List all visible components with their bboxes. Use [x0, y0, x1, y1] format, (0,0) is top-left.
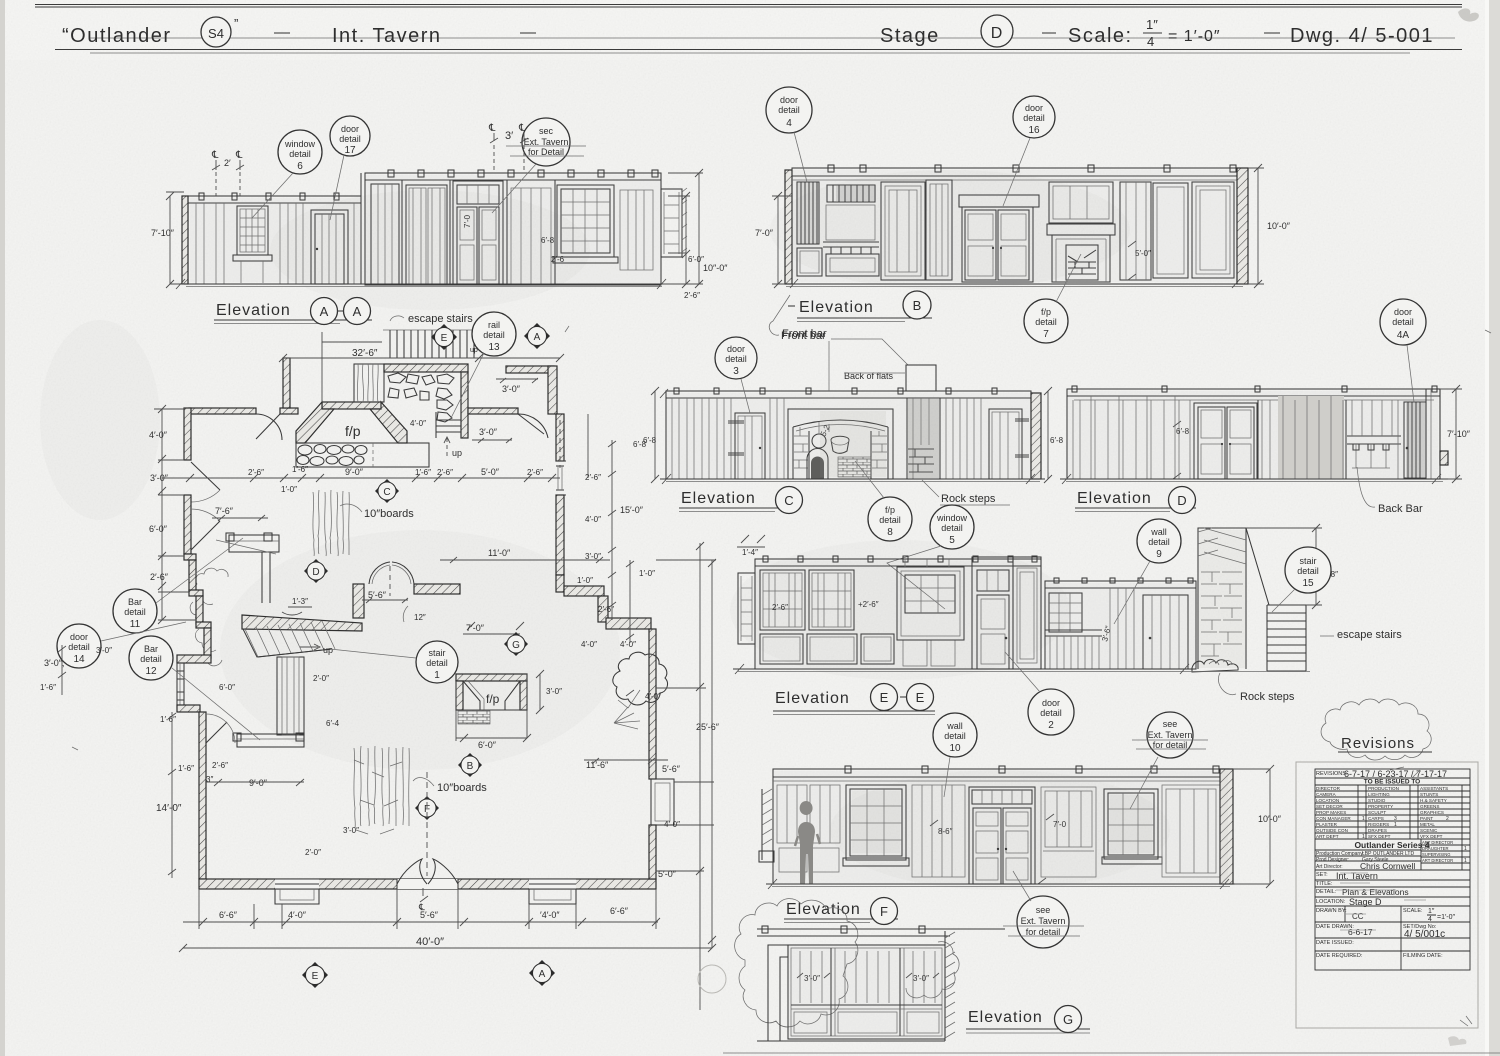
svg-text:4′-0″: 4′-0″: [664, 820, 680, 829]
svg-text:7′-0″: 7′-0″: [755, 228, 774, 238]
svg-text:see: see: [1036, 905, 1051, 915]
svg-text:2′-6″: 2′-6″: [248, 468, 264, 477]
svg-text:4: 4: [1428, 916, 1432, 923]
svg-text:6′-6″: 6′-6″: [610, 906, 629, 916]
svg-text:Back of flats: Back of flats: [844, 371, 894, 381]
svg-text:1′-6″: 1′-6″: [292, 465, 308, 474]
svg-text:DRAWN BY:: DRAWN BY:: [1316, 908, 1347, 914]
svg-text:f/p: f/p: [486, 692, 500, 706]
svg-text:detail: detail: [339, 134, 361, 144]
svg-text:sec: sec: [539, 126, 554, 136]
svg-text:10″boards: 10″boards: [437, 782, 487, 794]
svg-text:7′-0″: 7′-0″: [466, 623, 485, 633]
svg-text:STUDIO: STUDIO: [1368, 798, 1386, 803]
svg-text:detail: detail: [944, 731, 966, 741]
svg-text:SET DECOR: SET DECOR: [1316, 804, 1343, 809]
svg-text:E: E: [441, 333, 448, 344]
svg-text:4: 4: [1147, 34, 1154, 49]
svg-text:10″-0″: 10″-0″: [703, 263, 728, 273]
svg-text:6′-0″: 6′-0″: [219, 683, 235, 692]
svg-text:℄: ℄: [211, 150, 219, 161]
svg-text:OUTSIDE CON: OUTSIDE CON: [1316, 828, 1348, 833]
svg-text:=1′-0″: =1′-0″: [1437, 914, 1456, 921]
svg-text:wall: wall: [1150, 527, 1167, 537]
svg-text:rail: rail: [488, 320, 500, 330]
svg-text:door: door: [1042, 698, 1060, 708]
svg-text:SCULPT: SCULPT: [1368, 810, 1386, 815]
svg-text:6′-6″: 6′-6″: [219, 910, 238, 920]
svg-text:detail: detail: [1035, 317, 1057, 327]
svg-text:RIGGERS: RIGGERS: [1368, 822, 1389, 827]
svg-text:3′-0″: 3′-0″: [479, 427, 498, 437]
svg-text:ART DEPT: ART DEPT: [1316, 834, 1339, 839]
svg-text:door: door: [1025, 103, 1043, 113]
svg-text:8: 8: [887, 527, 893, 538]
svg-text:detail: detail: [140, 654, 162, 664]
svg-text:F: F: [880, 904, 888, 919]
svg-text:14: 14: [73, 654, 85, 665]
svg-text:13: 13: [488, 342, 500, 353]
svg-text:9: 9: [1156, 549, 1162, 560]
svg-text:METAL: METAL: [1420, 822, 1435, 827]
svg-text:9′-0″: 9′-0″: [249, 778, 268, 788]
svg-text:℄: ℄: [488, 123, 496, 134]
svg-text:1: 1: [1362, 816, 1365, 822]
svg-text:for Detail: for Detail: [528, 147, 564, 157]
svg-text:7′-10″: 7′-10″: [1447, 429, 1471, 439]
svg-text:6′-0″: 6′-0″: [149, 524, 168, 534]
svg-text:Int. Tavern: Int. Tavern: [332, 25, 442, 47]
svg-text:10: 10: [949, 743, 961, 754]
svg-text:℄: ℄: [518, 123, 526, 134]
svg-text:Bar: Bar: [144, 644, 158, 654]
svg-text:GREENS: GREENS: [1420, 804, 1439, 809]
svg-text:detail: detail: [941, 523, 963, 533]
svg-text:PROP MAKES: PROP MAKES: [1316, 810, 1346, 815]
svg-text:6′-0″: 6′-0″: [478, 740, 497, 750]
svg-text:1′-0″: 1′-0″: [639, 569, 655, 578]
svg-text:Art Director:: Art Director:: [1316, 864, 1343, 870]
svg-text:door: door: [727, 344, 745, 354]
svg-text:Revisions: Revisions: [1341, 735, 1415, 752]
svg-text:DATE ISSUED:: DATE ISSUED:: [1316, 940, 1354, 946]
svg-text:5′-6″: 5′-6″: [662, 764, 681, 774]
svg-text:11′-6″: 11′-6″: [586, 760, 609, 770]
svg-text:detail: detail: [1023, 113, 1045, 123]
svg-text:G: G: [512, 640, 520, 651]
svg-text:wall: wall: [946, 721, 963, 731]
svg-text:6-7-17 / 6-23-17 / 7-17-17: 6-7-17 / 6-23-17 / 7-17-17: [1344, 769, 1447, 779]
svg-text:C: C: [784, 493, 793, 508]
svg-text:”: ”: [234, 16, 238, 31]
svg-text:detail: detail: [124, 607, 146, 617]
svg-text:Front bar: Front bar: [782, 328, 827, 340]
svg-text:1: 1: [1362, 834, 1365, 840]
svg-text:detail: detail: [1040, 708, 1062, 718]
svg-text:see: see: [1163, 719, 1178, 729]
svg-text:4′-0″: 4′-0″: [620, 640, 636, 649]
svg-text:detail: detail: [1392, 317, 1414, 327]
svg-text:E: E: [916, 690, 925, 705]
svg-text:6′-8: 6′-8: [633, 440, 647, 449]
svg-text:DETAIL:: DETAIL:: [1316, 889, 1337, 895]
svg-text:Rock steps: Rock steps: [1240, 691, 1295, 703]
svg-text:SFX DEPT: SFX DEPT: [1368, 834, 1391, 839]
svg-text:DATE REQUIRED:: DATE REQUIRED:: [1316, 953, 1363, 959]
svg-text:= 1′-0″: = 1′-0″: [1168, 28, 1221, 45]
svg-text:7′-10″: 7′-10″: [151, 228, 175, 238]
svg-text:escape stairs: escape stairs: [1337, 629, 1402, 641]
svg-text:4′-0″: 4′-0″: [585, 515, 601, 524]
svg-text:GRAPHICS: GRAPHICS: [1420, 810, 1444, 815]
svg-text:1: 1: [434, 670, 440, 681]
svg-text:2′: 2′: [224, 158, 231, 168]
svg-text:5′-0″: 5′-0″: [658, 869, 677, 879]
svg-text:1′-0″: 1′-0″: [577, 576, 593, 585]
svg-text:Ext. Tavern: Ext. Tavern: [1148, 730, 1193, 740]
svg-text:FILMING DATE:: FILMING DATE:: [1403, 953, 1443, 959]
svg-text:2′-6″: 2′-6″: [527, 468, 543, 477]
svg-text:2′-0″: 2′-0″: [313, 674, 329, 683]
svg-text:6′-8: 6′-8: [1050, 436, 1064, 445]
svg-text:STUNTS: STUNTS: [1420, 792, 1438, 797]
svg-text:12″: 12″: [414, 613, 426, 622]
svg-text:3′-0″: 3′-0″: [502, 384, 521, 394]
svg-text:Chris Cornwell: Chris Cornwell: [1360, 861, 1415, 871]
svg-text:up: up: [323, 645, 333, 655]
svg-text:door: door: [780, 95, 798, 105]
svg-text:TITLE:: TITLE:: [1316, 881, 1333, 887]
svg-text:f/p: f/p: [885, 505, 895, 515]
svg-text:2: 2: [1446, 816, 1449, 822]
svg-text:4A: 4A: [1397, 330, 1410, 341]
svg-text:5′-0″: 5′-0″: [481, 467, 500, 477]
svg-text:PAINT: PAINT: [1420, 816, 1433, 821]
svg-text:1′-3″: 1′-3″: [292, 597, 308, 606]
svg-text:Int. Tavern: Int. Tavern: [1336, 871, 1378, 881]
svg-text:4/ 5/001c: 4/ 5/001c: [1404, 929, 1445, 940]
svg-text:Plan & Elevations: Plan & Elevations: [1342, 887, 1409, 897]
svg-text:A: A: [534, 332, 541, 343]
svg-text:PLASTER: PLASTER: [1316, 822, 1338, 827]
svg-text:2′-0″: 2′-0″: [305, 848, 321, 857]
svg-text:stair: stair: [428, 648, 445, 658]
svg-text:3′-0″: 3′-0″: [343, 826, 359, 835]
svg-text:CARPS: CARPS: [1368, 816, 1384, 821]
svg-text:G: G: [1063, 1012, 1073, 1027]
svg-text:4′-0″: 4′-0″: [288, 910, 307, 920]
svg-text:3′-0″: 3′-0″: [546, 687, 562, 696]
svg-text:Elevation: Elevation: [786, 901, 861, 918]
svg-text:detail: detail: [1148, 537, 1170, 547]
svg-text:7: 7: [1043, 329, 1049, 340]
svg-text:1: 1: [1394, 822, 1397, 828]
svg-text:1′-6″: 1′-6″: [40, 683, 56, 692]
svg-text:6-6-17: 6-6-17: [1348, 927, 1373, 937]
svg-text:door: door: [70, 632, 88, 642]
svg-text:SET:: SET:: [1316, 872, 1328, 878]
svg-text:Ext. Tavern: Ext. Tavern: [1021, 916, 1066, 926]
svg-text:for detail: for detail: [1026, 927, 1061, 937]
svg-text:SUPERVISING: SUPERVISING: [1422, 852, 1451, 857]
svg-text:LIGHTING: LIGHTING: [1368, 792, 1390, 797]
svg-text:ASSISTANTS: ASSISTANTS: [1420, 786, 1448, 791]
svg-text:ART DIRECTOR: ART DIRECTOR: [1422, 858, 1453, 863]
svg-text:1″: 1″: [1146, 17, 1158, 32]
svg-text:A: A: [320, 304, 329, 319]
svg-text:Elevation: Elevation: [681, 490, 756, 507]
svg-text:16: 16: [1028, 125, 1040, 136]
svg-text:℄: ℄: [418, 902, 425, 912]
svg-text:32′-6″: 32′-6″: [352, 348, 378, 359]
svg-text:up: up: [452, 448, 462, 458]
svg-text:3″: 3″: [206, 775, 213, 784]
svg-text:for detail: for detail: [1153, 740, 1188, 750]
svg-text:C: C: [383, 487, 390, 498]
svg-text:4′-0″: 4′-0″: [581, 640, 597, 649]
svg-text:Elevation: Elevation: [216, 302, 291, 319]
svg-text:f/p: f/p: [345, 423, 361, 439]
svg-text:A: A: [353, 304, 362, 319]
svg-text:Bar: Bar: [128, 597, 142, 607]
svg-text:10″boards: 10″boards: [364, 508, 414, 520]
svg-text:Prod Designer:: Prod Designer:: [1316, 857, 1349, 863]
svg-text:LOCATION:: LOCATION:: [1316, 899, 1346, 905]
svg-text:D: D: [1177, 493, 1186, 508]
svg-text:11′-0″: 11′-0″: [488, 548, 511, 558]
svg-text:7′-6″: 7′-6″: [215, 506, 234, 516]
svg-text:4: 4: [786, 118, 792, 129]
svg-text:door: door: [1394, 307, 1412, 317]
svg-text:SCALE:: SCALE:: [1403, 908, 1423, 914]
svg-text:3′-0″: 3′-0″: [96, 646, 112, 655]
svg-text:6′-0″: 6′-0″: [688, 255, 704, 264]
svg-text:2′-6″: 2′-6″: [684, 291, 700, 300]
svg-text:CC: CC: [1352, 912, 1364, 921]
svg-text:12: 12: [145, 666, 157, 677]
svg-text:10′-0″: 10′-0″: [1267, 221, 1291, 231]
svg-text:′4′-0″: ′4′-0″: [540, 910, 560, 920]
svg-text:11: 11: [130, 619, 141, 630]
svg-text:escape stairs: escape stairs: [408, 313, 473, 325]
svg-text:“Outlander: “Outlander: [62, 25, 172, 47]
svg-text:1: 1: [1464, 858, 1467, 864]
svg-text:3: 3: [733, 366, 739, 377]
svg-text:S4: S4: [208, 26, 224, 41]
svg-text:Ext. Tavern: Ext. Tavern: [524, 137, 569, 147]
svg-text:B: B: [467, 761, 474, 772]
svg-text:PROPERTY: PROPERTY: [1368, 804, 1393, 809]
svg-text:CON MANAGER: CON MANAGER: [1316, 816, 1351, 821]
svg-text:D: D: [991, 25, 1004, 42]
svg-text:10′-0″: 10′-0″: [1258, 814, 1282, 824]
svg-text:detail: detail: [778, 105, 800, 115]
svg-text:DIRECTOR: DIRECTOR: [1316, 786, 1341, 791]
svg-text:2′-6″: 2′-6″: [212, 761, 228, 770]
svg-text:15′-0″: 15′-0″: [620, 505, 644, 515]
svg-text:SCENIC: SCENIC: [1420, 828, 1438, 833]
svg-text:Elevation: Elevation: [799, 299, 874, 316]
svg-text:Rock steps: Rock steps: [941, 493, 996, 505]
svg-text:2′-6″: 2′-6″: [585, 473, 601, 482]
svg-text:E: E: [880, 690, 889, 705]
svg-text:1″: 1″: [1428, 908, 1435, 915]
svg-text:Elevation: Elevation: [775, 690, 850, 707]
svg-text:5: 5: [949, 535, 955, 546]
svg-text:3′: 3′: [505, 130, 513, 142]
svg-text:1′-6″: 1′-6″: [178, 764, 194, 773]
svg-text:6′-4: 6′-4: [326, 719, 340, 728]
svg-text:14′-0″: 14′-0″: [156, 803, 182, 814]
svg-text:1′-6″: 1′-6″: [160, 715, 176, 724]
svg-text:f/p: f/p: [1041, 307, 1051, 317]
svg-text:window: window: [936, 513, 968, 523]
svg-text:2: 2: [1048, 720, 1054, 731]
svg-text:B: B: [913, 298, 922, 313]
svg-text:2′-6″: 2′-6″: [150, 572, 169, 582]
svg-text:2′-6″: 2′-6″: [437, 468, 453, 477]
svg-text:detail: detail: [289, 149, 311, 159]
svg-text:detail: detail: [426, 658, 448, 668]
svg-text:4′-0″: 4′-0″: [149, 430, 168, 440]
svg-text:door: door: [341, 124, 359, 134]
svg-text:Dwg. 4/ 5-001: Dwg. 4/ 5-001: [1290, 25, 1434, 47]
svg-text:25′-6″: 25′-6″: [696, 722, 720, 732]
svg-text:1′-0″: 1′-0″: [281, 485, 297, 494]
svg-text:17: 17: [344, 145, 356, 156]
svg-text:Elevation: Elevation: [1077, 490, 1152, 507]
svg-text:detail: detail: [879, 515, 901, 525]
svg-text:detail: detail: [1297, 566, 1319, 576]
svg-text:℄: ℄: [235, 150, 243, 161]
svg-text:40′-0″: 40′-0″: [416, 936, 444, 948]
svg-text:6: 6: [297, 161, 303, 172]
svg-text:15: 15: [1302, 578, 1314, 589]
svg-text:1′-4″: 1′-4″: [742, 548, 758, 557]
svg-text:Scale:: Scale:: [1068, 25, 1133, 47]
svg-text:Stage D: Stage D: [1349, 897, 1382, 907]
svg-text:Stage: Stage: [880, 25, 940, 47]
svg-text:window: window: [284, 139, 316, 149]
svg-text:D: D: [312, 567, 319, 578]
svg-text:LOCATION: LOCATION: [1316, 798, 1339, 803]
svg-text:detail: detail: [68, 642, 90, 652]
svg-text:VFX DEPT: VFX DEPT: [1420, 834, 1443, 839]
svg-text:A: A: [539, 969, 546, 980]
svg-text:detail: detail: [483, 330, 505, 340]
svg-text:4′-0″: 4′-0″: [645, 692, 661, 701]
svg-text:3′-0″,: 3′-0″,: [44, 658, 64, 668]
svg-text:CAMERA: CAMERA: [1316, 792, 1337, 797]
svg-text:PRODUCTION: PRODUCTION: [1368, 786, 1399, 791]
svg-text:Back Bar: Back Bar: [1378, 503, 1423, 515]
svg-text:1′-6″: 1′-6″: [415, 468, 431, 477]
svg-text:1: 1: [1464, 846, 1467, 852]
svg-text:9′-0″: 9′-0″: [345, 467, 364, 477]
svg-text:TO BE ISSUED TO: TO BE ISSUED TO: [1364, 779, 1420, 786]
svg-text:4′-0″: 4′-0″: [410, 419, 426, 428]
svg-text:DRAPES: DRAPES: [1368, 828, 1387, 833]
svg-text:E: E: [312, 971, 319, 982]
svg-text:H.& SAFETY: H.& SAFETY: [1420, 798, 1447, 803]
svg-text:detail: detail: [725, 354, 747, 364]
svg-text:Elevation: Elevation: [968, 1009, 1043, 1026]
svg-text:Outlander Series 4: Outlander Series 4: [1354, 840, 1429, 850]
svg-text:stair: stair: [1299, 556, 1316, 566]
